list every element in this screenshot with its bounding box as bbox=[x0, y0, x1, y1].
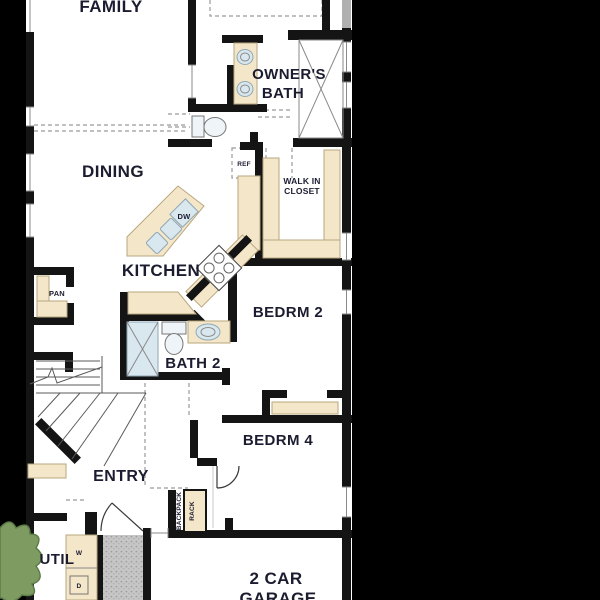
bath2-shower bbox=[127, 322, 158, 376]
window bbox=[342, 290, 351, 314]
bath2-vanity bbox=[188, 321, 230, 343]
room-label-garage-1: 2 CAR bbox=[249, 569, 302, 588]
wall bbox=[322, 0, 330, 35]
wall bbox=[225, 518, 233, 530]
bedrm2-closet-shelf bbox=[272, 402, 338, 414]
room-label-owners-bath-2: BATH bbox=[262, 85, 304, 102]
room-label-bath2: BATH 2 bbox=[165, 355, 220, 372]
wall bbox=[66, 267, 74, 287]
wall bbox=[342, 0, 351, 28]
label-rack: RACK bbox=[189, 501, 196, 521]
wall bbox=[26, 513, 67, 521]
room-label-kitchen: KITCHEN bbox=[122, 261, 200, 280]
wall bbox=[168, 139, 212, 147]
wall bbox=[250, 132, 258, 144]
label-dryer: D bbox=[77, 583, 82, 590]
wall bbox=[188, 104, 267, 112]
room-label-walk-in-1: WALK IN bbox=[283, 176, 320, 186]
room-label-dining: DINING bbox=[82, 162, 144, 181]
room-label-bedrm4: BEDRM 4 bbox=[243, 432, 314, 449]
floor-plan-image: FAMILY DINING OWNER'S BATH WALK IN CLOSE… bbox=[0, 0, 600, 600]
wall bbox=[34, 317, 74, 325]
wall bbox=[262, 390, 270, 418]
wall bbox=[168, 490, 176, 535]
wall bbox=[85, 512, 97, 535]
wall bbox=[190, 420, 198, 458]
sink-icon bbox=[196, 324, 220, 340]
wall bbox=[288, 30, 352, 40]
room-label-bedrm2: BEDRM 2 bbox=[253, 304, 323, 321]
label-backpack: BACKPACK bbox=[176, 492, 183, 530]
sink-icon bbox=[237, 82, 253, 97]
room-label-walk-in-2: CLOSET bbox=[284, 186, 320, 196]
wall bbox=[222, 415, 352, 423]
wall bbox=[97, 535, 103, 600]
label-dw: DW bbox=[178, 212, 192, 221]
wall bbox=[188, 0, 196, 65]
wall bbox=[293, 138, 352, 147]
toilet-icon bbox=[192, 116, 226, 137]
wall bbox=[143, 528, 151, 600]
room-label-entry: ENTRY bbox=[93, 468, 149, 485]
window bbox=[342, 487, 351, 517]
room-label-garage-2: GARAGE bbox=[239, 589, 316, 600]
stair-landing-shelf bbox=[28, 464, 66, 478]
wall bbox=[26, 0, 34, 600]
window bbox=[26, 0, 34, 32]
floor-plan-svg: FAMILY DINING OWNER'S BATH WALK IN CLOSE… bbox=[0, 0, 600, 600]
window bbox=[26, 154, 34, 191]
label-ref: REF bbox=[237, 161, 251, 168]
room-label-family: FAMILY bbox=[79, 0, 142, 16]
window bbox=[26, 107, 34, 126]
window bbox=[342, 233, 351, 260]
sink-icon bbox=[237, 50, 253, 65]
wall bbox=[327, 390, 342, 398]
window bbox=[188, 65, 196, 98]
room-label-util: UTIL bbox=[40, 551, 75, 568]
label-washer: W bbox=[76, 550, 83, 557]
porch-slab bbox=[103, 535, 143, 600]
window bbox=[26, 204, 34, 237]
wall bbox=[197, 458, 217, 466]
room-label-owners-bath-1: OWNER'S bbox=[252, 66, 326, 83]
window bbox=[151, 528, 168, 538]
wall bbox=[222, 35, 263, 43]
room-label-pan: PAN bbox=[49, 289, 65, 298]
